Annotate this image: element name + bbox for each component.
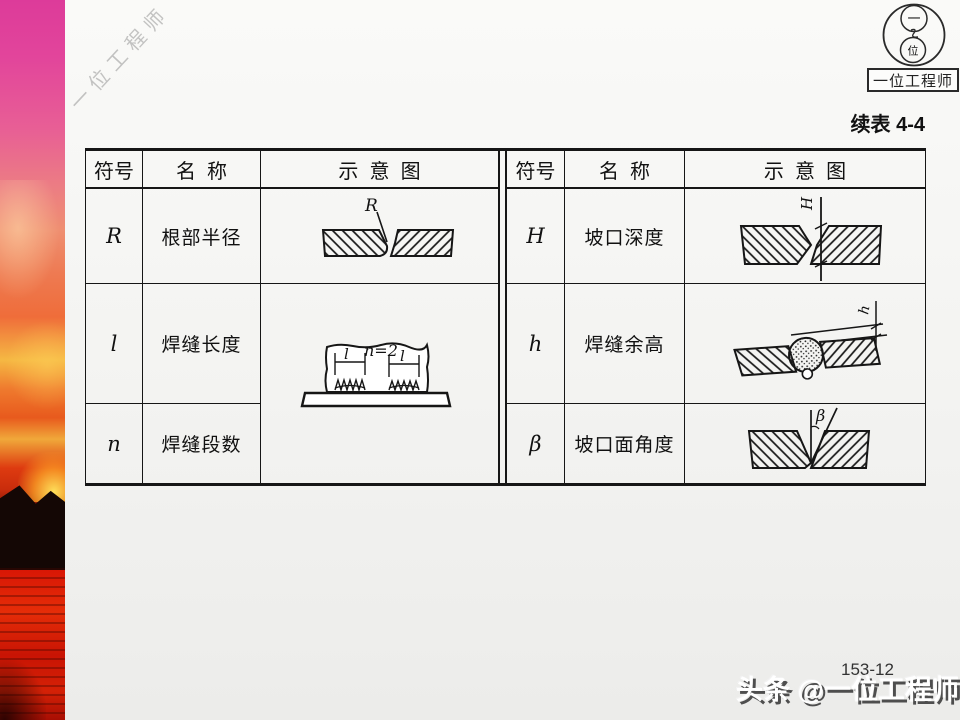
- sunset-photo-strip: [0, 0, 65, 720]
- root-radius-diagram: R: [261, 190, 498, 283]
- weld-symbols-table: 符号 名 称 示 意 图 R 根部半径 R l 焊缝长度: [85, 148, 926, 486]
- diagram-cell-root-radius: R: [261, 189, 498, 284]
- weld-length-label-left: l: [344, 345, 349, 363]
- diagonal-watermark: 一位工程师: [62, 0, 175, 116]
- name-cell-groove-depth: 坡口深度: [565, 189, 685, 284]
- groove-depth-label: H: [798, 196, 816, 211]
- table-double-divider: [498, 151, 507, 483]
- root-radius-label: R: [364, 196, 378, 216]
- name-cell-reinforcement: 焊缝余高: [565, 284, 685, 404]
- logo-top-char: 一: [907, 11, 920, 26]
- symbol-cell-H: H: [507, 189, 565, 284]
- reinforcement-label: h: [856, 304, 873, 316]
- header-symbol: 符号: [507, 151, 565, 189]
- groove-angle-label: β: [815, 406, 825, 425]
- groove-depth-diagram: H: [685, 190, 925, 283]
- diagram-cell-groove-depth: H: [685, 189, 925, 284]
- name-cell-weld-segments: 焊缝段数: [143, 404, 261, 483]
- groove-angle-diagram: β: [685, 405, 925, 482]
- logo-bottom-char: 位: [908, 44, 919, 58]
- header-symbol: 符号: [86, 151, 143, 189]
- weld-reinforcement-diagram: h: [685, 285, 925, 403]
- name-cell-weld-length: 焊缝长度: [143, 284, 261, 404]
- name-cell-groove-angle: 坡口面角度: [565, 404, 685, 483]
- dark-water-patch: [0, 660, 46, 720]
- diagram-cell-weld-length-segments: l l n=2: [261, 284, 498, 483]
- symbol-cell-h: h: [507, 284, 565, 404]
- logo: 一 位 一位工程师: [866, 2, 960, 92]
- symbol-cell-l: l: [86, 284, 143, 404]
- cloud-highlight: [5, 320, 65, 410]
- weld-length-diagram: l l n=2: [261, 285, 498, 482]
- right-table: 符号 名 称 示 意 图 H 坡口深度 H h 焊缝余高: [507, 151, 926, 483]
- symbol-cell-beta: β: [507, 404, 565, 483]
- name-cell-root-radius: 根部半径: [143, 189, 261, 284]
- header-name: 名 称: [143, 151, 261, 189]
- diagram-cell-reinforcement: h: [685, 284, 925, 404]
- logo-name-box: 一位工程师: [867, 68, 959, 92]
- header-diagram: 示 意 图: [685, 151, 925, 189]
- slide-background: 一位工程师 一 位 一位工程师 续表 4-4 符号 名 称 示 意 图 R 根部…: [0, 0, 960, 720]
- weld-length-label-right: l: [400, 347, 405, 365]
- cloud-highlight: [0, 180, 60, 300]
- symbol-cell-R: R: [86, 189, 143, 284]
- bottom-watermark: 头条 @一位工程师: [736, 668, 959, 707]
- left-table: 符号 名 称 示 意 图 R 根部半径 R l 焊缝长度: [85, 151, 498, 483]
- logo-circle-icon: 一 位: [866, 2, 960, 68]
- symbol-cell-n: n: [86, 404, 143, 483]
- segment-count-label: n=2: [364, 341, 398, 360]
- diagram-cell-groove-angle: β: [685, 404, 925, 483]
- table-caption: 续表 4-4: [85, 108, 925, 137]
- logo-name: 一位工程师: [873, 70, 953, 91]
- header-diagram: 示 意 图: [261, 151, 498, 189]
- header-name: 名 称: [565, 151, 685, 189]
